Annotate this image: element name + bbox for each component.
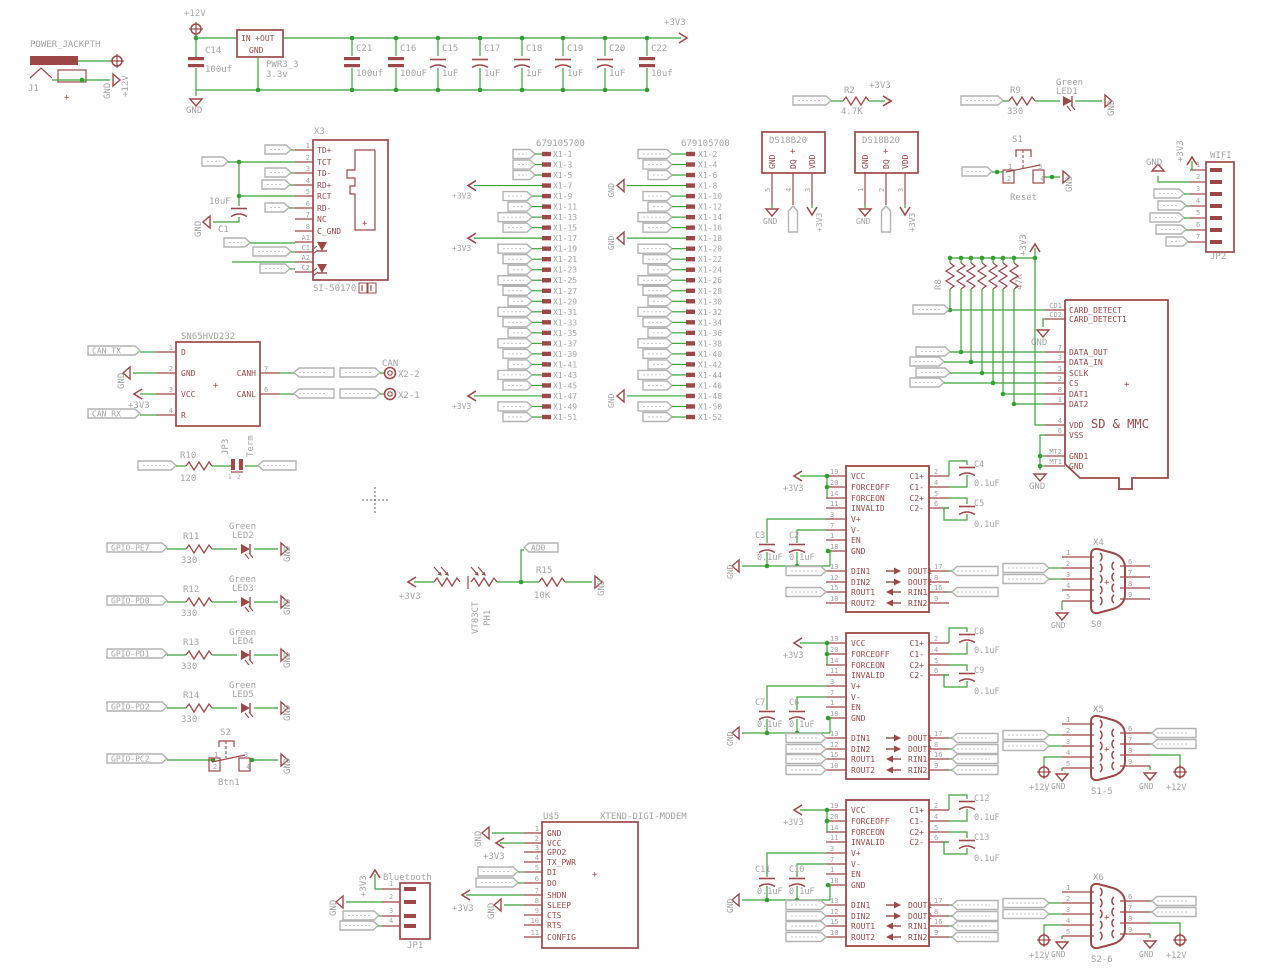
gnd-symbol[interactable]	[859, 209, 871, 216]
pin-number: 3	[830, 511, 834, 519]
junction-dot	[995, 170, 1000, 175]
header-pin-label: X1-40	[698, 350, 722, 359]
pin-bar[interactable]	[1210, 228, 1222, 232]
net-flag[interactable]	[648, 328, 672, 337]
header-pin-label: X1-8	[698, 182, 717, 191]
power-jack-barrel[interactable]	[30, 56, 78, 65]
header-pin-label: X1-20	[698, 245, 722, 254]
pin-name: DI	[547, 868, 557, 877]
header-pin[interactable]	[542, 341, 551, 345]
net-flag[interactable]	[508, 202, 532, 211]
db9-pin	[1100, 753, 1102, 761]
gnd-symbol[interactable]	[1056, 942, 1068, 949]
label: 1uF	[442, 69, 458, 79]
gnd-symbol[interactable]	[203, 216, 210, 228]
capacitor-c22[interactable]	[639, 64, 655, 67]
pin-name: DOUT1	[908, 734, 932, 743]
resistor-r9[interactable]	[1009, 97, 1035, 105]
pin-number: 4	[934, 646, 938, 654]
schematic-sheet: POWER_JACKPTH+12VGNDJ1++12VC14100ufIN+OU…	[0, 0, 1276, 973]
resistor-r14[interactable]	[186, 704, 212, 712]
pin-name: RD+	[317, 181, 332, 190]
label: 4	[1040, 175, 1044, 183]
label: R13	[183, 638, 199, 648]
label: 1	[1008, 163, 1012, 171]
led1[interactable]	[1063, 96, 1075, 111]
pin-bar[interactable]	[404, 887, 416, 891]
header-pin-label: X1-30	[698, 297, 722, 306]
net-flag[interactable]	[789, 206, 798, 232]
header-pin[interactable]	[686, 331, 695, 335]
pin-number: 7	[830, 856, 834, 864]
part-value-xtend: XTEND-DIGI-MODEM	[600, 812, 687, 822]
label: +	[883, 147, 889, 157]
pin-number: 10	[830, 762, 838, 770]
header-pin[interactable]	[686, 362, 695, 366]
pin-name: INVALID	[851, 504, 885, 513]
header-pin[interactable]	[686, 268, 695, 272]
pin-bar[interactable]	[1210, 204, 1222, 208]
part-outline[interactable]	[359, 283, 367, 293]
label: 330	[181, 662, 197, 672]
header-pin[interactable]	[542, 183, 551, 187]
pin-name: DQ	[882, 159, 891, 169]
label: 2	[213, 763, 217, 771]
header-pin[interactable]	[686, 415, 695, 419]
header-pin[interactable]	[542, 215, 551, 219]
label: OUT	[260, 34, 275, 43]
header-pin[interactable]	[542, 320, 551, 324]
header-pin[interactable]	[542, 278, 551, 282]
pin-number: 11	[830, 834, 838, 842]
label: 330	[181, 609, 197, 619]
pin-number: 8	[1128, 915, 1132, 923]
net-flag[interactable]	[508, 360, 532, 369]
pin-number: 1	[389, 880, 393, 888]
label: GND	[1031, 338, 1047, 348]
capacitor-c16[interactable]	[388, 57, 404, 60]
header-pin[interactable]	[542, 289, 551, 293]
resistor-r15[interactable]	[539, 578, 565, 586]
part-name-r8: R8	[934, 279, 944, 290]
junction-dot	[561, 36, 566, 41]
label: C11	[755, 865, 770, 875]
part-value: S0	[1091, 620, 1102, 630]
resistor-r13[interactable]	[186, 651, 212, 659]
pin-name: EN	[851, 870, 861, 879]
db9-pin	[1112, 740, 1114, 748]
capacitor-c14[interactable]	[188, 57, 204, 60]
pin-name: GND	[851, 714, 866, 723]
header-pin-label: X1-47	[553, 392, 577, 401]
pin-name: C1+	[910, 639, 925, 648]
label: JP3	[221, 439, 231, 455]
pin-number: 8	[1128, 580, 1132, 588]
net-flag-label: GPIO-PD2	[111, 703, 150, 712]
capacitor-c14[interactable]	[188, 64, 204, 67]
pin-number: 2	[1066, 560, 1070, 568]
gnd-symbol[interactable]	[1144, 773, 1156, 780]
part-value-vt83ct: VT83CT	[471, 601, 481, 634]
pin-name: DIN1	[851, 901, 870, 910]
pin-bar[interactable]	[404, 924, 416, 928]
pin-number: 20	[830, 646, 838, 654]
header-pin[interactable]	[542, 236, 551, 240]
db9-pin	[1100, 553, 1102, 561]
part-name-pwr3_3: PWR3_3	[266, 60, 299, 70]
pin-name: DIN1	[851, 734, 870, 743]
pin-number: 3	[1066, 571, 1070, 579]
junction-dot	[826, 549, 831, 554]
pin-number: 1	[1066, 884, 1070, 892]
pin-name: SLEEP	[547, 901, 571, 910]
resistor-r8[interactable]	[967, 263, 975, 289]
resistor-r10[interactable]	[186, 462, 212, 470]
header-pin[interactable]	[542, 194, 551, 198]
resistor-r8[interactable]	[946, 263, 954, 289]
pin-name: VCC	[851, 639, 866, 648]
label: +12V	[1166, 783, 1186, 793]
header-pin-label: X1-52	[698, 413, 722, 422]
net-flag[interactable]	[508, 328, 532, 337]
label: LED4	[232, 637, 254, 647]
pin-name: INVALID	[851, 838, 885, 847]
label: X2-2	[398, 370, 420, 380]
label: +12V	[121, 75, 131, 97]
header-pin[interactable]	[542, 383, 551, 387]
header-pin[interactable]	[542, 352, 551, 356]
resistor-r8[interactable]	[978, 263, 986, 289]
pin-name: C1-	[910, 650, 924, 659]
junction-dot	[825, 474, 830, 479]
header-pin[interactable]	[686, 225, 695, 229]
header-pin-label: X1-2	[698, 150, 717, 159]
part-name-x5: X5	[1093, 705, 1104, 715]
label: GND	[1139, 950, 1154, 959]
header-pin[interactable]	[542, 394, 551, 398]
pin-name: C1-	[910, 817, 924, 826]
db9-pin	[1112, 562, 1114, 570]
pin-number: 2	[934, 635, 938, 643]
header-pin[interactable]	[686, 278, 695, 282]
led3[interactable]	[241, 597, 253, 612]
label: +	[64, 93, 70, 103]
label: 10K	[534, 591, 551, 601]
header-pin[interactable]	[542, 362, 551, 366]
resistor-r8[interactable]	[989, 263, 997, 289]
part-outline[interactable]	[368, 283, 376, 293]
pin-bar[interactable]	[1210, 192, 1222, 196]
net-flag[interactable]	[508, 265, 532, 274]
led2[interactable]	[241, 544, 253, 559]
label: 10uF	[209, 197, 231, 207]
capacitor-c21[interactable]	[344, 57, 360, 60]
label: C15	[442, 44, 458, 54]
header-pin[interactable]	[686, 183, 695, 187]
header-pin[interactable]	[686, 194, 695, 198]
wire	[944, 675, 967, 687]
net-flag-label: CAN_RX	[92, 410, 121, 419]
pin-number: 6	[535, 875, 539, 883]
pin-number: 9	[934, 762, 938, 770]
temp-sensors: DS18B20GND5DQ4VDD3+GND+3V3DS18B20GND1DQ2…	[762, 132, 918, 232]
header-pin[interactable]	[542, 152, 551, 156]
pin-name: VDD	[1069, 421, 1084, 430]
photoresistor[interactable]	[471, 578, 497, 586]
jumper-jp3[interactable]	[231, 459, 235, 470]
junction-dot	[1050, 175, 1055, 180]
header-pin[interactable]	[686, 257, 695, 261]
header-pin-label: X1-13	[553, 213, 577, 222]
resistor-r8[interactable]	[999, 263, 1007, 289]
header-pin-label: X1-10	[698, 192, 722, 201]
ethernet-led[interactable]	[312, 264, 327, 276]
header-pin[interactable]	[542, 246, 551, 250]
label: +	[362, 219, 368, 229]
header-pin[interactable]	[686, 289, 695, 293]
header-pin[interactable]	[686, 215, 695, 219]
label: 2	[237, 474, 241, 481]
pin-number: 6	[1128, 725, 1132, 733]
label: C22	[651, 44, 667, 54]
header-pin[interactable]	[542, 404, 551, 408]
capacitor-c1[interactable]	[231, 214, 247, 217]
pin-number: 5	[1066, 760, 1070, 768]
pin-name: GND	[851, 547, 866, 556]
pin-number: 4	[785, 188, 793, 192]
net-flag[interactable]	[882, 206, 891, 232]
pin-bar[interactable]	[404, 914, 416, 918]
junction-dot	[825, 485, 830, 490]
header-pin[interactable]	[686, 394, 695, 398]
gnd-symbol[interactable]	[1056, 774, 1068, 781]
ethernet-led[interactable]	[312, 242, 327, 254]
label: 0.1uF	[974, 479, 1000, 489]
gnd-symbol[interactable]	[1056, 613, 1068, 620]
label: 3	[244, 751, 248, 759]
resistor-r11[interactable]	[186, 545, 212, 553]
header-pin[interactable]	[686, 310, 695, 314]
net-flag[interactable]	[508, 297, 532, 306]
net-flag[interactable]	[265, 203, 289, 212]
capacitor-c16[interactable]	[388, 64, 404, 67]
header-pin[interactable]	[686, 299, 695, 303]
pin-name: CARD_DETECT1	[1069, 315, 1127, 324]
part-name-x6: X6	[1093, 873, 1104, 883]
pin-bar[interactable]	[1210, 240, 1222, 244]
pin-number: 6	[1058, 427, 1062, 435]
gnd-symbol[interactable]	[1144, 941, 1156, 948]
headers: 679105700X1-1X1-3X1-5X1-7+3V3X1-9X1-11X1…	[452, 139, 730, 422]
label: GND	[329, 900, 339, 916]
header-pin[interactable]	[686, 352, 695, 356]
pin-number: 2	[1066, 895, 1070, 903]
pin-bar[interactable]	[1210, 216, 1222, 220]
net-flag[interactable]	[648, 202, 672, 211]
db9-pin	[1112, 751, 1114, 759]
header-pin[interactable]	[542, 310, 551, 314]
pin-number: 7	[1196, 233, 1200, 241]
pin-name: VSS	[1069, 431, 1084, 440]
pin-name: RIN1	[908, 755, 927, 764]
part-name-jp1: JP1	[407, 941, 423, 951]
junction-dot	[826, 883, 831, 888]
net-flag[interactable]	[648, 297, 672, 306]
pin-number: 7	[1128, 736, 1132, 744]
pin-number: 6	[1128, 558, 1132, 566]
db9-pin	[1100, 764, 1102, 772]
gnd-symbol[interactable]	[1034, 474, 1046, 481]
header-pin[interactable]	[686, 383, 695, 387]
capacitor-c17[interactable]	[472, 65, 488, 68]
capacitor-c18[interactable]	[514, 65, 530, 68]
label: LED3	[232, 584, 254, 594]
wire	[949, 475, 967, 487]
pin-name: DQ	[789, 159, 798, 169]
resistor-r12[interactable]	[186, 598, 212, 606]
jumper-jp3[interactable]	[239, 459, 243, 470]
pin-name: C2+	[910, 494, 925, 503]
label: 330	[1007, 107, 1023, 117]
header-pin[interactable]	[686, 152, 695, 156]
pin-number: 9	[934, 929, 938, 937]
gnd-symbol[interactable]	[617, 232, 624, 244]
pin-number: 16	[934, 918, 942, 926]
capacitor-c21[interactable]	[344, 64, 360, 67]
gnd-symbol[interactable]	[617, 390, 624, 402]
net-flag[interactable]	[648, 265, 672, 274]
capacitor-c19[interactable]	[555, 65, 571, 68]
label: C10	[789, 865, 804, 875]
db9-pin	[1112, 762, 1114, 770]
junction-dot	[394, 88, 399, 93]
label: GND	[607, 393, 616, 408]
net-flag[interactable]	[648, 360, 672, 369]
header-pin[interactable]	[686, 204, 695, 208]
bluetooth-header-outline[interactable]	[400, 883, 430, 939]
pin-number: 7	[306, 211, 310, 219]
capacitor-c15[interactable]	[430, 65, 446, 68]
can-pad-x2-2	[388, 371, 392, 375]
header-pin[interactable]	[686, 341, 695, 345]
wire	[797, 530, 826, 543]
part-value: S1-5	[1091, 787, 1113, 797]
pin-name: D	[181, 348, 186, 357]
header-pin-label: X1-50	[698, 402, 722, 411]
header-pin[interactable]	[542, 373, 551, 377]
junction-dot	[250, 758, 255, 763]
label: C2	[789, 531, 799, 541]
label: +	[1104, 913, 1110, 923]
resistor-r2[interactable]	[843, 97, 869, 105]
header-pin[interactable]	[542, 331, 551, 335]
header-pin[interactable]	[542, 415, 551, 419]
pin-name: V+	[851, 682, 861, 691]
pin-number: CD1	[1049, 302, 1062, 310]
header-pin[interactable]	[542, 204, 551, 208]
header-pin[interactable]	[542, 299, 551, 303]
header-pin[interactable]	[686, 373, 695, 377]
db9-pin	[1100, 731, 1102, 739]
gnd-symbol[interactable]	[1037, 330, 1049, 337]
pin-name: TD+	[317, 146, 332, 155]
header-pin[interactable]	[686, 404, 695, 408]
capacitor-c22[interactable]	[639, 57, 655, 60]
header-pin-label: X1-49	[553, 402, 577, 411]
header-pin[interactable]	[686, 320, 695, 324]
header-pin[interactable]	[542, 173, 551, 177]
pin-number: 12	[830, 741, 838, 749]
junction-dot	[603, 36, 608, 41]
capacitor-c20[interactable]	[597, 65, 613, 68]
pin-name: RD-	[317, 204, 331, 213]
label: R14	[183, 691, 199, 701]
gnd-symbol[interactable]	[190, 99, 202, 106]
part-value-si50170: SI-50170	[313, 284, 356, 294]
gnd-symbol[interactable]	[766, 209, 778, 216]
label: GND	[1139, 782, 1154, 791]
led4[interactable]	[241, 650, 253, 665]
pin-name: SCLK	[1069, 369, 1088, 378]
can-pad-x2-2[interactable]	[385, 368, 396, 379]
header-pin[interactable]	[542, 162, 551, 166]
pin-number: 20	[830, 813, 838, 821]
pin-number: 15	[830, 751, 838, 759]
header-pin[interactable]	[542, 225, 551, 229]
resistor-r8[interactable]	[1010, 263, 1018, 289]
header-pin[interactable]	[686, 173, 695, 177]
pin-name: DOUT2	[908, 912, 932, 921]
photoresistor[interactable]	[434, 578, 460, 586]
label: LED5	[232, 690, 254, 700]
junction-dot	[436, 36, 441, 41]
junction-dot	[80, 78, 85, 83]
label: GND	[763, 217, 778, 226]
pin-name: V+	[851, 515, 861, 524]
header-pin-label: X1-23	[553, 266, 577, 275]
pin-number: 3	[804, 188, 812, 192]
header-pin[interactable]	[686, 162, 695, 166]
pin-name: ROUT1	[851, 755, 875, 764]
part-value-ds18b20: DS18B20	[862, 136, 900, 146]
can-pad-x2-1[interactable]	[385, 389, 396, 400]
label: 3	[1038, 163, 1042, 171]
gnd-symbol[interactable]	[113, 74, 120, 86]
header-pin[interactable]	[686, 236, 695, 240]
net-flag[interactable]	[648, 171, 672, 180]
led5[interactable]	[241, 703, 253, 718]
label: C20	[609, 44, 625, 54]
pin-number: 7	[264, 365, 268, 373]
header-pin[interactable]	[542, 257, 551, 261]
header-pin[interactable]	[542, 268, 551, 272]
label: 1uF	[484, 69, 500, 79]
cursor	[362, 487, 388, 513]
pin-bar[interactable]	[1210, 180, 1222, 184]
header-pin-label: X1-28	[698, 287, 722, 296]
arrow-icon	[894, 902, 901, 909]
pin-name: FORCEOFF	[851, 650, 890, 659]
gnd-symbol[interactable]	[617, 180, 624, 192]
resistor-r8[interactable]	[957, 263, 965, 289]
header-pin[interactable]	[686, 246, 695, 250]
pin-bar[interactable]	[1210, 168, 1222, 172]
pin-name: FORCEON	[851, 661, 885, 670]
header-pin-label: X1-11	[553, 203, 577, 212]
pin-number: 9	[1128, 758, 1132, 766]
pullup-r2: R24.7K+3V3	[793, 81, 891, 117]
pin-bar[interactable]	[404, 900, 416, 904]
